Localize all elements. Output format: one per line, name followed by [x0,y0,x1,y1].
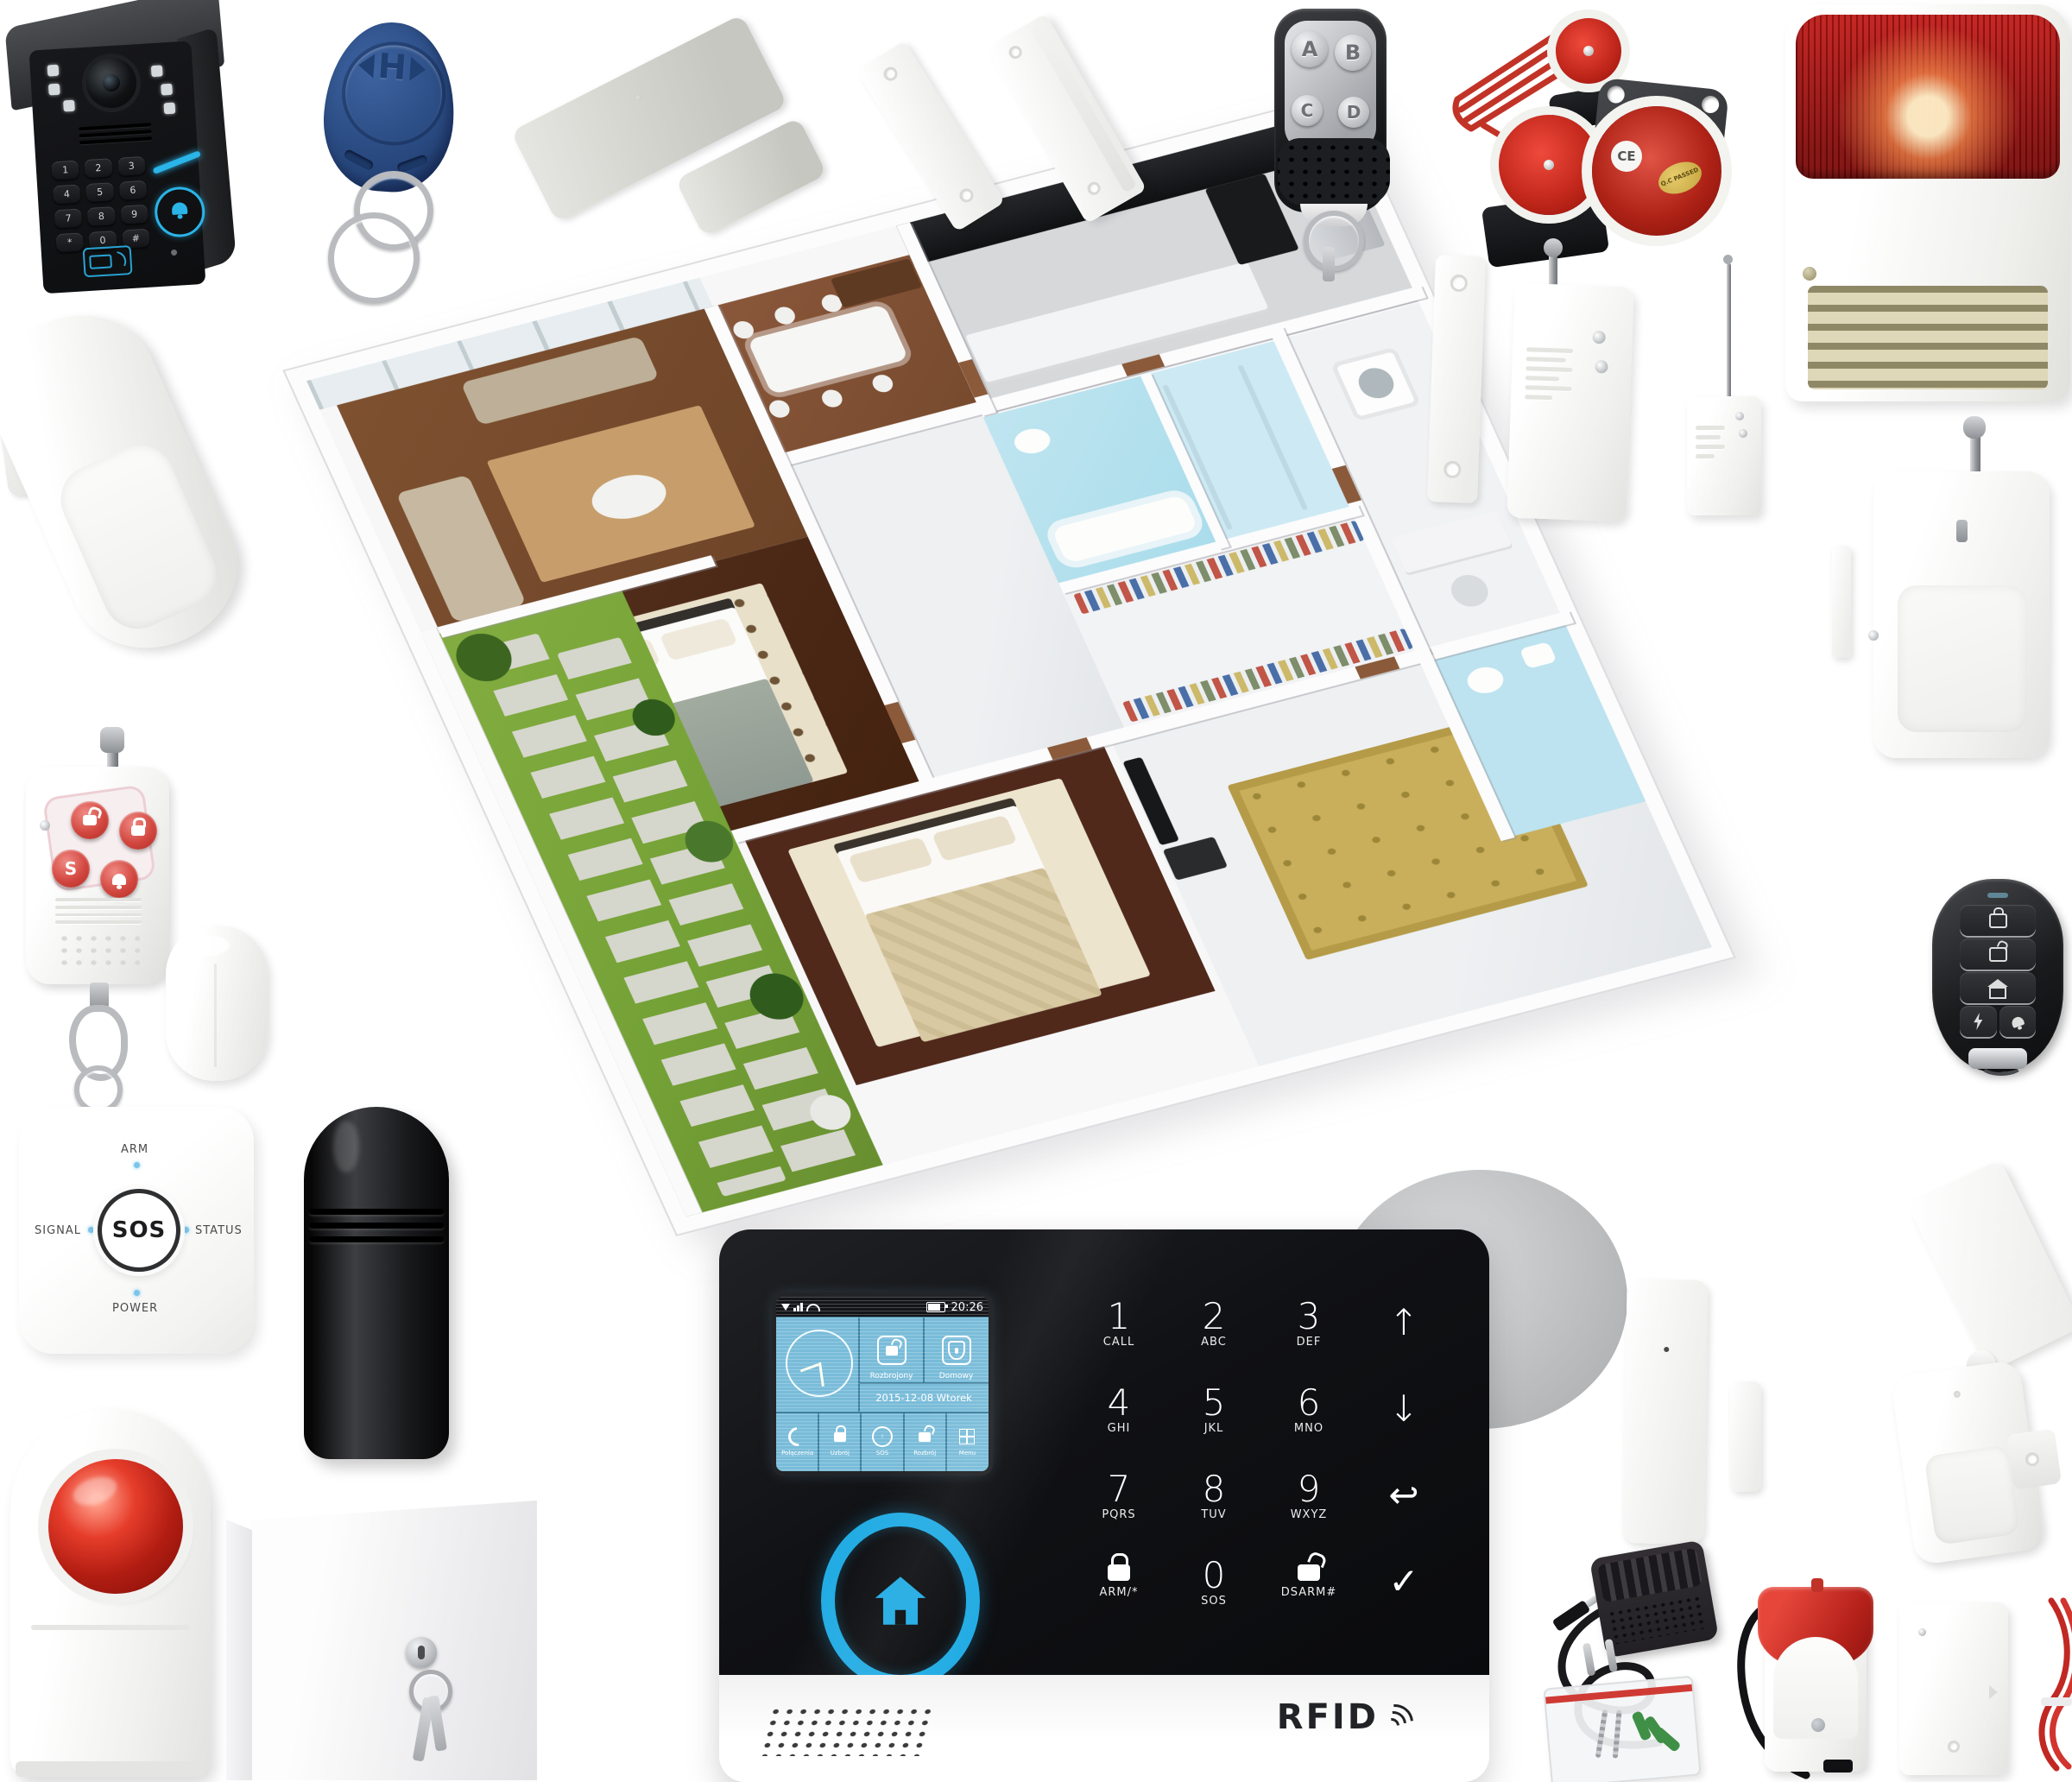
key-6: 6MNO [1294,1384,1323,1435]
antenna-tip [1723,255,1733,264]
signal-led [88,1227,94,1233]
flash-siren-body [10,1409,211,1777]
screen-status-bar: 20:26 [776,1297,989,1318]
remote-body: A B C D [1274,9,1387,212]
mini-siren-set: CE Q.C PASSED [1449,4,1729,268]
mini-strobe-siren [1740,1573,1894,1782]
plastic-bag [1543,1676,1701,1782]
lock-icon [1989,913,2007,928]
wired-battery-box [1896,1596,2072,1782]
panic-remote-4-button: S [19,727,179,1103]
solar-pir-sensor [1884,1172,2072,1563]
red-dome-lens [48,1459,183,1594]
key [1323,247,1335,281]
sensor-bar [1622,1279,1708,1545]
vibration-sensor-antenna [1677,255,1773,518]
led [1739,429,1747,438]
hub-body: ARM SIGNAL STATUS POWER SOS [19,1107,254,1354]
ir-led [63,100,75,112]
doorbell-call-button [154,186,206,238]
signal-bars-icon [793,1303,803,1311]
led-hole [1918,1628,1926,1636]
button-d: D [1338,97,1369,128]
key-8: 8TUV [1201,1470,1226,1521]
button-b: B [1335,35,1371,71]
mini-siren-large [1499,115,1599,215]
home-mode-tile: Domowy [924,1318,989,1383]
cabinet-box [226,1501,537,1780]
vent-dots [1608,1594,1709,1645]
round-siren-face: CE Q.C PASSED [1592,106,1721,236]
unlock-button [71,801,109,839]
doorbell-keypad: 1 2 3 4 5 6 7 8 9 * 0 # [51,156,149,252]
mini-siren-small [1556,18,1621,84]
unlock-icon [877,1336,906,1365]
contact-magnet-bar [856,41,1006,232]
doorbell-status-light [152,150,201,174]
screw-hole [1085,180,1102,197]
menu-calls: Połączenia [776,1412,818,1471]
strobe-red-lens [1796,15,2060,179]
speaker-lines [1696,426,1725,458]
magnetic-contact-pair [894,0,1187,233]
disarm-tile-label: Rozbrojony [870,1372,913,1383]
doorbell-key: 3 [117,156,146,176]
signal-icons [781,1303,820,1311]
seam [214,964,217,1067]
screw [1803,267,1816,281]
screw-hole [1007,43,1024,60]
speaker-dots [57,932,140,969]
doorbell-key: 7 [54,208,83,228]
doorbell-key: * [56,232,85,252]
key-up-arrow: ↑ [1388,1304,1418,1342]
led-hole [634,93,641,100]
shield-icon [942,1336,971,1365]
red-wires [1999,1596,2072,1782]
right-arrow-icon [409,57,426,82]
strobe-speaker-grille [1808,286,2048,389]
lock-button [119,812,157,850]
signal-label: SIGNAL [35,1224,81,1237]
phone-icon [788,1427,807,1446]
key-disarm: DSARM# [1281,1564,1337,1599]
bell-icon [172,202,188,215]
pir-body [0,289,262,673]
bell-icon [112,874,126,885]
keyfob-body: H [319,18,459,196]
screen-date: 2015-12-08 Wtorek [859,1383,989,1412]
solar-cell [1921,1173,2060,1342]
battery-icon [926,1302,945,1312]
antenna-knob [100,727,124,753]
ir-led [151,65,163,77]
base [16,1761,205,1777]
panic-button [1960,1006,1997,1037]
key-1: 1CALL [1103,1298,1134,1349]
menu-sos: ! SOS [861,1412,903,1471]
lock-button [1960,905,2036,936]
doorbell-key: 8 [87,206,116,226]
arm-led [134,1162,140,1168]
home-button-ring [821,1513,980,1675]
led-hole [1953,1390,1961,1398]
status-label: STATUS [195,1224,243,1237]
clock-tile [776,1318,859,1412]
screw [1948,1741,1960,1753]
slim-door-sensor [1621,1271,1790,1556]
bag-zip-stripe [1545,1684,1692,1704]
side-button [1868,630,1879,641]
key-4: 4GHI [1108,1384,1131,1435]
remote-keyfob-abcd: A B C D [1271,7,1396,266]
telescopic-antenna [1727,263,1731,401]
mount-tab [2006,1428,2062,1489]
key-5: 5JKL [1203,1384,1226,1435]
screen-menu-row: Połączenia Uzbrój ! SOS Rozbrój [776,1412,989,1471]
outdoor-flash-siren [10,1409,218,1782]
cabinet-lock [406,1637,437,1668]
menu-menu: Menu [946,1412,989,1471]
led-slot [1956,520,1968,542]
left-arrow-icon [358,53,376,78]
body-line [31,1625,190,1630]
ir-led [48,84,60,96]
panel-touch-keypad: 1CALL 2ABC 3DEF ↑ 4GHI 5JKL 6MNO ↓ 7PQRS… [1071,1280,1451,1625]
contact-sensor-bar [986,14,1147,224]
screw-hole [1443,461,1462,479]
rfid-keyfob: H [321,19,464,278]
lightning-icon [1972,1013,1984,1030]
screw-hole [881,65,900,84]
magnet-bar [1427,255,1486,503]
keyfob-slot [343,148,375,172]
remote-grip [1278,138,1390,205]
doorbell-face: 1 2 3 4 5 6 7 8 9 * 0 # [29,41,206,294]
rfid-card-icon [83,245,133,277]
panel-lcd-screen: 20:26 Rozbrojony Domowy 2015-12-08 Wtore… [776,1297,989,1471]
arm-label: ARM [121,1143,148,1156]
doorbell-key: 9 [120,205,148,224]
doorbell-key: 1 [51,161,79,180]
led [1595,360,1608,374]
car-keyfob-5-button [1932,879,2072,1086]
status-led [183,1227,189,1233]
key-down-arrow: ↓ [1388,1390,1418,1428]
doorbell-speaker [79,123,152,146]
remote-plate: A B C D [1285,21,1376,150]
strobe-body [1785,4,2070,401]
product-collage: 1 2 3 4 5 6 7 8 9 * 0 # H [0,0,2072,1782]
unlock-icon [83,815,97,825]
analog-clock [786,1330,853,1397]
fob-buttons [1960,905,2036,1037]
video-doorbell: 1 2 3 4 5 6 7 8 9 * 0 # [3,0,245,299]
panel-speaker [758,1706,939,1756]
plug-pins [1582,1637,1626,1678]
unlock-icon [919,1427,931,1446]
panel-face: 20:26 Rozbrojony Domowy 2015-12-08 Wtore… [719,1229,1489,1675]
sensor-body [1507,283,1633,522]
rfid-waves-icon [1384,1699,1417,1732]
home-icon [869,1572,932,1629]
beam-sensor [304,1107,452,1463]
ce-sticker: CE [1611,141,1642,172]
grid-icon [959,1427,975,1446]
key-7: 7PQRS [1102,1470,1135,1521]
disarm-tile: Rozbrojony [859,1318,924,1383]
mount-hole [2025,1451,2040,1467]
gloss [333,1121,359,1172]
wifi-icon [806,1304,820,1311]
keyfob-logo: H [376,51,407,84]
home-icon [1989,981,2006,995]
screw-hole [1450,275,1469,293]
ir-led [161,84,173,96]
key-9: 9WXYZ [1291,1470,1328,1521]
led-hole [1664,1347,1669,1352]
ir-led [47,65,60,77]
bell-button [1999,1006,2037,1037]
screen-time: 20:26 [951,1301,983,1314]
keyfob-slot [396,154,429,174]
adapter-ribs [1597,1548,1702,1602]
fob-led [1987,893,2008,898]
key-back: ↩ [1388,1476,1418,1514]
home-tile-label: Domowy [939,1372,973,1383]
rfid-area: RFID [1277,1697,1417,1737]
door-sensor-antenna [1426,243,1661,524]
antenna-icon [781,1304,790,1311]
led-indicator [40,820,50,831]
menu-disarm: Rozbrój [904,1412,946,1471]
doorbell-mic-hole [171,250,177,256]
pir-sensor-antenna [1832,416,2065,766]
doorbell-key: 2 [85,158,113,178]
pir-fresnel-window [50,434,228,640]
sos-icon: ! [872,1427,893,1446]
sensor-body [1687,396,1761,515]
grip-ridges [55,898,142,924]
led [1811,1718,1825,1732]
box-body [1899,1602,2008,1775]
key-confirm: ✓ [1388,1563,1418,1601]
screw-bag [1547,1682,1707,1782]
mini-pir-body [166,926,268,1081]
screw [1595,1709,1608,1758]
bell-icon [2010,1014,2025,1027]
dc-jack [1823,1760,1853,1773]
lock-icon [131,825,145,836]
panel-bottom-bar: RFID [719,1675,1489,1782]
key-ring [328,212,420,304]
lock-icon [1108,1564,1130,1581]
home-arm-button [1960,972,2036,1003]
sos-hub: ARM SIGNAL STATUS POWER SOS [19,1107,256,1357]
doorbell-key: 6 [119,180,148,200]
pir-motion-sensor-bracket [0,302,250,708]
led [1735,412,1744,420]
fob-body [1932,879,2063,1072]
rfid-label: RFID [1277,1697,1379,1737]
screw-hole [957,186,976,205]
door-sensor-gray [528,16,831,244]
speaker-lines [1525,347,1573,401]
magnet-bar [1730,1381,1761,1492]
doorbell-camera-lens [85,56,137,109]
qc-sticker: Q.C PASSED [1654,155,1707,199]
screen-scanlines [776,1297,989,1471]
button-a: A [1292,31,1328,67]
menu-arm: Uzbrój [818,1412,861,1471]
screw [1613,1709,1622,1758]
power-led [134,1290,140,1296]
ir-led [164,103,176,115]
cabinet-edge [226,1520,252,1780]
pir-body [1873,471,2050,758]
button-c: C [1292,95,1323,126]
antenna-knob [1544,238,1563,257]
unlock-icon [1989,947,2007,962]
sos-button: SOS [102,1193,176,1267]
power-label: POWER [112,1302,158,1315]
lock-icon [834,1427,846,1446]
contact-split [1031,23,1137,193]
front-panel [1773,1637,1858,1739]
key-2: 2ABC [1201,1298,1227,1349]
beam-body [304,1107,449,1459]
magnet-sliver [1832,546,1851,658]
bell-button [100,860,138,898]
key-0: 0SOS [1201,1557,1227,1608]
remote-body: S [26,767,169,984]
arrow-mark [1989,1685,1998,1699]
outdoor-strobe-siren-large [1785,4,2070,401]
metal-key-cabinet [226,1501,539,1782]
top-nub [1811,1578,1823,1592]
highlight [178,934,230,957]
alarm-control-panel: 20:26 Rozbrojony Domowy 2015-12-08 Wtore… [719,1229,1489,1782]
doorbell-key: 5 [85,182,114,202]
sos-button: S [52,850,90,888]
fresnel-window [1898,585,2027,732]
mini-pir-sensor [166,926,274,1085]
chrome-tip [1968,1048,2027,1069]
fresnel-window [1924,1444,2021,1545]
key-arm: ARM/* [1099,1564,1138,1599]
solar-panel [1907,1160,2072,1373]
key-3: 3DEF [1297,1298,1322,1349]
battery-time: 20:26 [926,1301,983,1314]
led [1592,331,1606,344]
doorbell-key: 4 [53,184,81,204]
unlock-button [1960,938,2036,970]
unlock-icon [1298,1564,1320,1581]
antenna-knob [1963,416,1986,439]
